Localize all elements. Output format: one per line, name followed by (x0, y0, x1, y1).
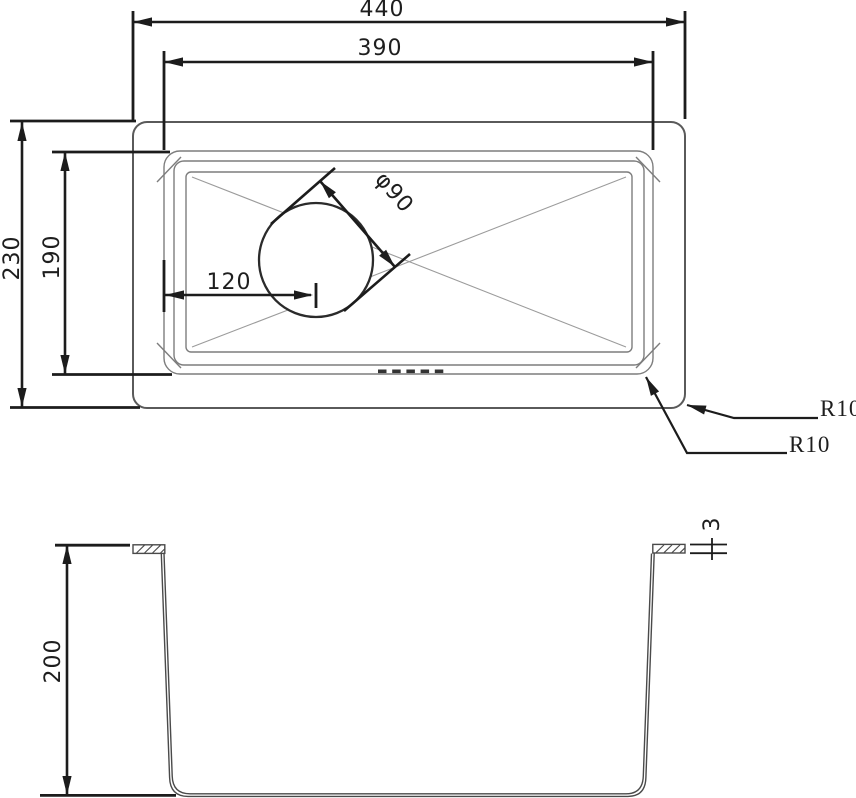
dim-200-label: 200 (41, 639, 66, 684)
top-view: 440 390 230 190 (0, 0, 856, 457)
dim-drain-diameter: φ90 (271, 167, 418, 311)
r10-inner-label: R10 (789, 432, 830, 457)
dim-3-label: 3 (700, 517, 725, 532)
drain-grooves (378, 370, 443, 374)
drawing-canvas: 440 390 230 190 (0, 0, 856, 798)
leader-r10-outer: R10 (687, 396, 856, 421)
dim-outer-depth: 230 (0, 121, 140, 408)
section-view: 200 3 (40, 517, 727, 797)
dim-drain-offset: 120 (164, 260, 316, 312)
dim-190-label: 190 (40, 235, 65, 280)
dim-120-label: 120 (207, 270, 252, 295)
dim-outer-width: 440 (133, 0, 685, 120)
dim-440-label: 440 (360, 0, 405, 22)
dim-inner-width: 390 (164, 36, 653, 150)
dim-inner-depth: 190 (40, 152, 172, 375)
dim-phi90-label: φ90 (370, 167, 419, 218)
dim-390-label: 390 (358, 36, 403, 61)
dim-bowl-depth: 200 (40, 545, 176, 795)
dim-230-label: 230 (0, 236, 25, 281)
dim-material-thickness: 3 (690, 517, 727, 561)
r10-outer-label: R10 (820, 396, 856, 421)
flange-left (133, 545, 165, 554)
flange-right (653, 544, 685, 553)
section-profile (161, 554, 654, 797)
sink-drawing: 440 390 230 190 (0, 0, 856, 798)
